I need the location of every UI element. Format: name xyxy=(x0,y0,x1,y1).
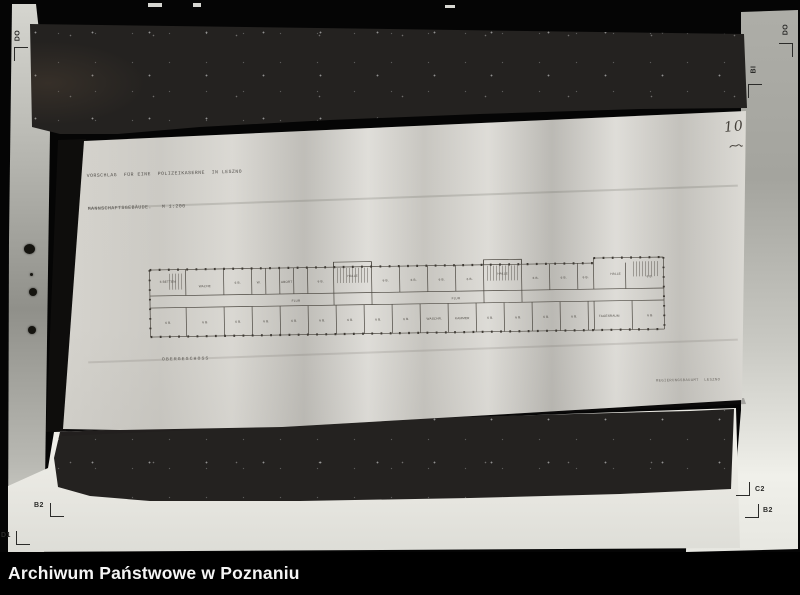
office-label: REGIERUNGSBAUAMT LESZNO xyxy=(656,378,720,383)
room-label: 6 B. xyxy=(202,320,208,324)
reg-mark-top-left-label: DO xyxy=(12,32,24,39)
floor-plan-svg: 6 BETTENWACHE6 B.W.ABORT6 B.HALLE6 B.6 B… xyxy=(145,250,670,350)
room-label: W. xyxy=(257,280,261,284)
archive-name: Archiwum Państwowe w Poznaniu xyxy=(8,563,300,584)
room-label: 6 B. xyxy=(319,318,325,322)
reg-mark-top-right-label: DO xyxy=(780,26,792,33)
corridor-walls xyxy=(150,288,664,308)
reg-mark-bottom-left-lower-label: D1 xyxy=(1,532,11,539)
punch-hole xyxy=(29,288,37,296)
room-label: HALLE xyxy=(610,272,621,276)
room-label: 6 B. xyxy=(375,317,381,321)
room-label: 6 B. xyxy=(533,276,539,280)
room-label: FLUR xyxy=(292,299,301,303)
floor-plan-drawing: 6 BETTENWACHE6 B.W.ABORT6 B.HALLE6 B.6 B… xyxy=(145,250,670,350)
room-label: 6 B. xyxy=(647,274,653,278)
scribble-mark xyxy=(727,137,745,158)
floor-plan-labels: 6 BETTENWACHE6 B.W.ABORT6 B.HALLE6 B.6 B… xyxy=(160,269,654,325)
room-label: 6 B. xyxy=(571,314,577,318)
room-label: 6 B. xyxy=(583,275,589,279)
reg-mark-bottom-left-lower-bracket xyxy=(16,531,30,545)
film-edge-tick xyxy=(148,3,162,7)
film-edge-tick xyxy=(445,5,455,8)
room-label: KAMMER xyxy=(455,316,470,320)
reg-mark-right-mid-bracket xyxy=(748,84,762,98)
reg-mark-bottom-left-upper-label: B2 xyxy=(34,502,44,509)
title-block: VORSCHLAG FÜR EINE POLIZEIKASERNE IN LES… xyxy=(86,145,244,237)
room-label: TAGESRAUM xyxy=(599,314,620,318)
archival-photo-frame: VORSCHLAG FÜR EINE POLIZEIKASERNE IN LES… xyxy=(0,0,800,595)
room-label: 6 BETTEN xyxy=(160,280,176,284)
room-label: 6 B. xyxy=(165,321,171,325)
room-label: 6 B. xyxy=(647,313,653,317)
handwritten-page-number: 10 xyxy=(723,118,744,136)
room-label: WACHE xyxy=(199,284,211,288)
room-label: ABORT xyxy=(281,280,292,284)
room-label: 6 B. xyxy=(235,320,241,324)
film-edge-tick xyxy=(193,3,201,7)
room-label: HALLE xyxy=(497,271,508,275)
room-label: 6 B. xyxy=(561,276,567,280)
reg-mark-bottom-right-lower-label: B2 xyxy=(763,507,773,514)
reg-mark-top-right-bracket xyxy=(779,43,793,57)
punch-hole xyxy=(28,326,36,334)
room-label: 6 B. xyxy=(403,317,409,321)
hall-walls xyxy=(333,258,594,334)
room-label: 6 B. xyxy=(347,318,353,322)
room-label: HALLE xyxy=(347,274,358,278)
reg-mark-right-mid-label: BI xyxy=(750,66,758,73)
reg-mark-top-left-bracket xyxy=(14,47,28,61)
room-label: 6 B. xyxy=(318,279,324,283)
room-label: 6 B. xyxy=(291,319,297,323)
room-label: 6 B. xyxy=(263,319,269,323)
room-label: 6 B. xyxy=(383,278,389,282)
title-line-2: MANNSCHAFTSGEBÄUDE. M 1:200 xyxy=(88,200,244,215)
punch-hole xyxy=(30,273,33,276)
reg-mark-bottom-left-upper-bracket xyxy=(50,503,64,517)
room-label: 6 B. xyxy=(467,277,473,281)
room-label: 6 B. xyxy=(235,281,241,285)
outer-walls xyxy=(149,257,664,337)
floor-label: OBERGESCHOSS xyxy=(162,357,210,363)
room-label: 6 B. xyxy=(411,278,417,282)
room-label: FLUR xyxy=(452,296,461,300)
room-label: 6 B. xyxy=(515,315,521,319)
room-label: WASCHR. xyxy=(426,316,442,320)
room-label: 6 B. xyxy=(439,277,445,281)
reg-mark-bottom-right-upper-label: C2 xyxy=(755,486,765,493)
room-label: 6 B. xyxy=(543,315,549,319)
reg-mark-bottom-right-upper-bracket xyxy=(736,482,750,496)
punch-hole xyxy=(24,244,35,254)
reg-mark-bottom-right-lower-bracket xyxy=(745,504,759,518)
room-label: 6 B. xyxy=(487,316,493,320)
stair-right-pavilion xyxy=(633,261,657,276)
archive-caption-bar: Archiwum Państwowe w Poznaniu xyxy=(0,552,800,595)
title-line-1: VORSCHLAG FÜR EINE POLIZEIKASERNE IN LES… xyxy=(87,167,243,182)
